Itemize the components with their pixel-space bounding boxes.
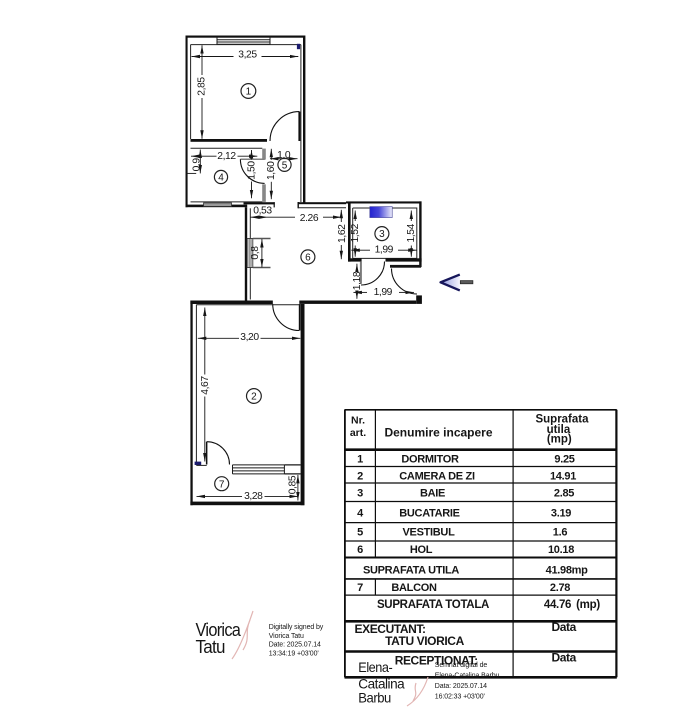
svg-text:1.6: 1.6 <box>553 526 568 538</box>
svg-text:0,53: 0,53 <box>253 206 272 217</box>
svg-text:13:34:19 +03'00': 13:34:19 +03'00' <box>269 650 319 657</box>
svg-text:Barbu: Barbu <box>358 690 391 706</box>
svg-text:2: 2 <box>357 470 363 482</box>
svg-text:Tatu: Tatu <box>196 636 226 657</box>
svg-text:44.76: 44.76 <box>544 599 571 611</box>
svg-text:Data: Data <box>552 620 577 634</box>
svg-text:6: 6 <box>305 253 311 264</box>
svg-text:0,9: 0,9 <box>192 158 203 172</box>
svg-text:3: 3 <box>357 488 363 500</box>
svg-text:2.85: 2.85 <box>554 488 574 500</box>
svg-text:16:02:33 +03'00': 16:02:33 +03'00' <box>435 694 485 701</box>
svg-text:1,50: 1,50 <box>247 161 258 180</box>
svg-text:1: 1 <box>357 453 363 465</box>
svg-text:3,28: 3,28 <box>244 491 263 502</box>
svg-text:Elena-: Elena- <box>358 659 393 675</box>
svg-text:DORMITOR: DORMITOR <box>401 453 459 465</box>
svg-text:Denumire incapere: Denumire incapere <box>384 426 492 440</box>
svg-text:Digitally signed by: Digitally signed by <box>269 624 324 631</box>
svg-text:1,18: 1,18 <box>352 271 363 290</box>
svg-text:9.25: 9.25 <box>554 453 574 465</box>
svg-text:0,8: 0,8 <box>250 246 261 260</box>
svg-text:1,60: 1,60 <box>266 161 277 180</box>
svg-text:Viorica Tatu: Viorica Tatu <box>269 633 304 640</box>
svg-text:4: 4 <box>357 507 364 519</box>
svg-text:2: 2 <box>251 392 257 403</box>
svg-text:3,25: 3,25 <box>238 49 257 60</box>
svg-text:1,52: 1,52 <box>350 223 361 242</box>
svg-text:BALCON: BALCON <box>391 582 437 594</box>
svg-text:HOL: HOL <box>410 544 433 556</box>
svg-text:2,85: 2,85 <box>197 77 208 96</box>
svg-text:Data: 2025.07.14: Data: 2025.07.14 <box>435 683 487 690</box>
svg-text:(mp): (mp) <box>576 599 600 611</box>
svg-text:2,12: 2,12 <box>217 151 236 162</box>
svg-text:1,99: 1,99 <box>375 244 394 255</box>
svg-text:3: 3 <box>379 229 385 240</box>
svg-text:4: 4 <box>218 173 224 184</box>
svg-text:5: 5 <box>357 526 363 538</box>
svg-text:41.98mp: 41.98mp <box>546 564 589 576</box>
svg-text:CAMERA DE ZI: CAMERA DE ZI <box>399 470 475 482</box>
svg-text:Nr.: Nr. <box>351 415 365 427</box>
svg-text:1,99: 1,99 <box>374 287 393 298</box>
svg-text:3.19: 3.19 <box>551 507 571 519</box>
svg-text:14.91: 14.91 <box>550 470 576 482</box>
svg-text:7: 7 <box>357 582 363 594</box>
svg-text:3,20: 3,20 <box>240 332 259 343</box>
svg-text:SUPRAFATA UTILA: SUPRAFATA UTILA <box>363 564 459 576</box>
svg-text:BUCATARIE: BUCATARIE <box>399 507 459 519</box>
svg-text:SUPRAFATA TOTALA: SUPRAFATA TOTALA <box>377 599 489 611</box>
svg-text:VESTIBUL: VESTIBUL <box>403 526 456 538</box>
svg-text:6: 6 <box>357 544 363 556</box>
svg-text:5: 5 <box>282 160 288 171</box>
svg-text:0,85: 0,85 <box>287 475 298 494</box>
svg-text:1,62: 1,62 <box>337 224 348 243</box>
svg-text:1: 1 <box>246 87 252 98</box>
svg-text:TATU VIORICA: TATU VIORICA <box>385 634 464 648</box>
svg-text:1,54: 1,54 <box>406 223 417 242</box>
svg-text:2.26: 2.26 <box>300 213 319 224</box>
svg-text:10.18: 10.18 <box>548 544 574 556</box>
svg-text:art.: art. <box>350 427 366 439</box>
svg-text:Elena-Catalina Barbu: Elena-Catalina Barbu <box>435 673 500 680</box>
svg-text:Date: 2025.07.14: Date: 2025.07.14 <box>269 642 321 649</box>
svg-text:Data: Data <box>552 651 577 665</box>
svg-text:2.78: 2.78 <box>550 582 570 594</box>
svg-text:4,67: 4,67 <box>200 376 211 395</box>
svg-text:(mp): (mp) <box>547 434 572 446</box>
svg-text:BAIE: BAIE <box>420 488 445 500</box>
svg-text:7: 7 <box>219 479 225 490</box>
svg-text:Semnat digital de: Semnat digital de <box>435 662 488 669</box>
